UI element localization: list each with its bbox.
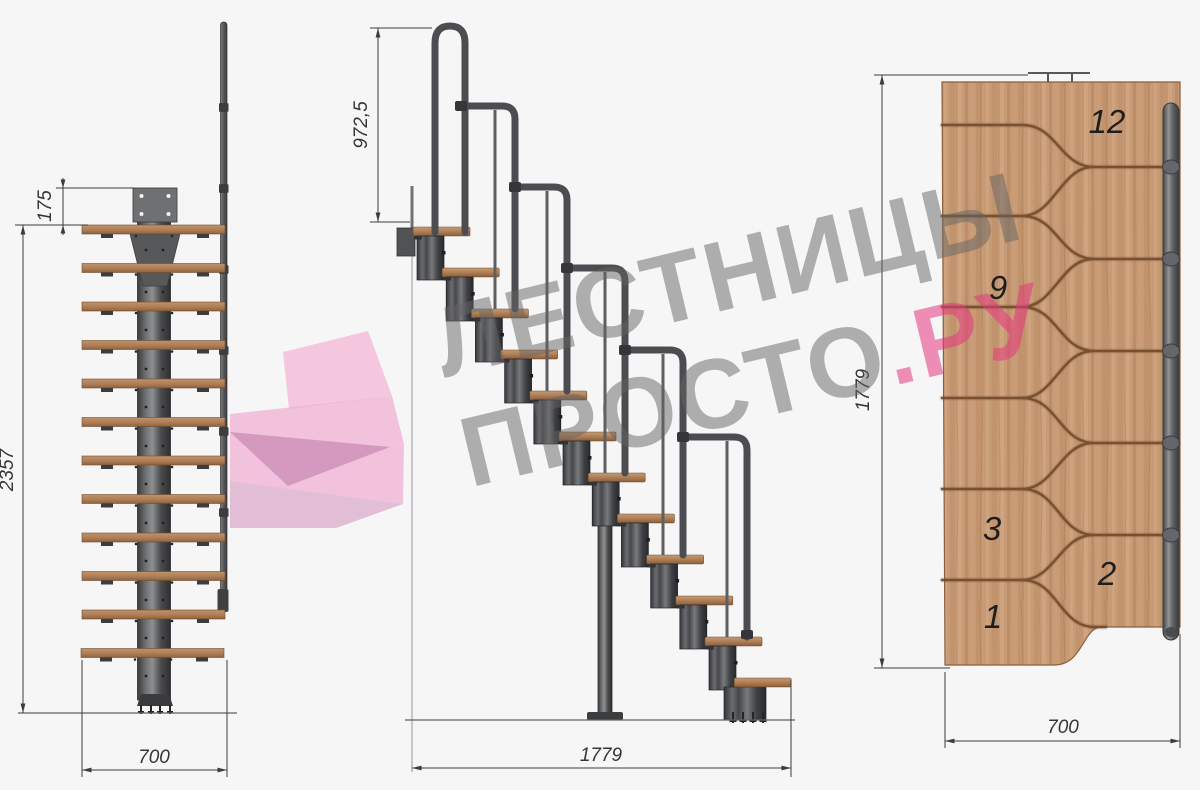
- dim-label-175: 175: [35, 190, 56, 222]
- base-anchors: [18, 694, 237, 714]
- dim-label-700-plan: 700: [1047, 717, 1079, 738]
- wall-bracket-plan: [1028, 73, 1090, 82]
- handrail-plan: [1163, 103, 1180, 640]
- dimension-handrail-height: 972,5: [351, 28, 432, 222]
- plan-view: 12 9 3 2 1 1779 700: [850, 0, 1200, 790]
- dimension-total-height: 2357: [0, 225, 88, 713]
- step-number-12: 12: [1089, 103, 1126, 140]
- step-number-9: 9: [989, 269, 1007, 306]
- step-number-1: 1: [984, 598, 1002, 635]
- support-post: [587, 526, 623, 720]
- front-elevation-view: 175 2357 700: [0, 0, 260, 790]
- step-number-2: 2: [1097, 555, 1116, 592]
- wall-plate: [133, 188, 177, 222]
- dim-label-700-front: 700: [138, 747, 170, 768]
- dim-label-2357: 2357: [0, 447, 18, 492]
- dim-label-1779-plan: 1779: [853, 368, 874, 411]
- handrail-baluster-front: [218, 22, 229, 612]
- wall-bracket: [397, 186, 415, 256]
- dim-label-972-5: 972,5: [351, 101, 372, 149]
- drawing-canvas: 175 2357 700: [0, 0, 1200, 790]
- step-number-3: 3: [983, 510, 1002, 547]
- side-elevation-view: 972,5 1779: [350, 0, 800, 790]
- dim-label-1779-side: 1779: [580, 745, 623, 766]
